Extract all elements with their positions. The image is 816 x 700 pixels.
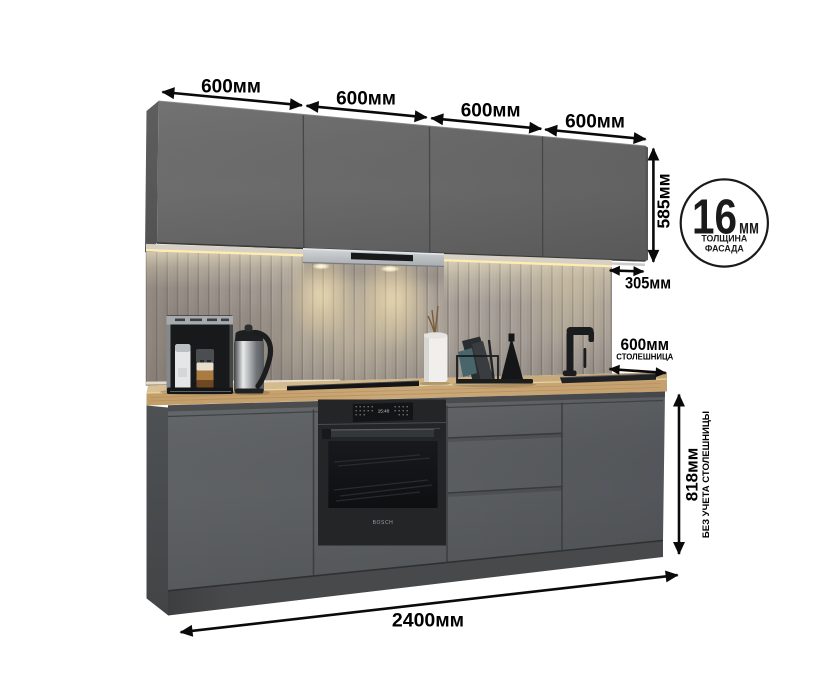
svg-text:15:40: 15:40 (378, 409, 390, 414)
svg-text:600мм: 600мм (461, 101, 521, 122)
svg-text:600мм: 600мм (565, 112, 625, 133)
svg-text:2400мм: 2400мм (392, 610, 464, 632)
svg-text:600мм: 600мм (336, 89, 396, 110)
svg-text:600мм: 600мм (201, 77, 261, 98)
svg-text:ТОЛЩИНА: ТОЛЩИНА (701, 234, 748, 244)
svg-text:585мм: 585мм (654, 173, 674, 228)
svg-text:818мм: 818мм (683, 448, 702, 502)
svg-text:СТОЛЕШНИЦА: СТОЛЕШНИЦА (616, 351, 674, 361)
svg-text:ФАСАДА: ФАСАДА (705, 243, 745, 253)
svg-text:БЕЗ УЧЕТА СТОЛЕШНИЦЫ: БЕЗ УЧЕТА СТОЛЕШНИЦЫ (701, 411, 712, 538)
svg-text:BOSCH: BOSCH (373, 520, 394, 526)
svg-text:305мм: 305мм (625, 274, 671, 293)
